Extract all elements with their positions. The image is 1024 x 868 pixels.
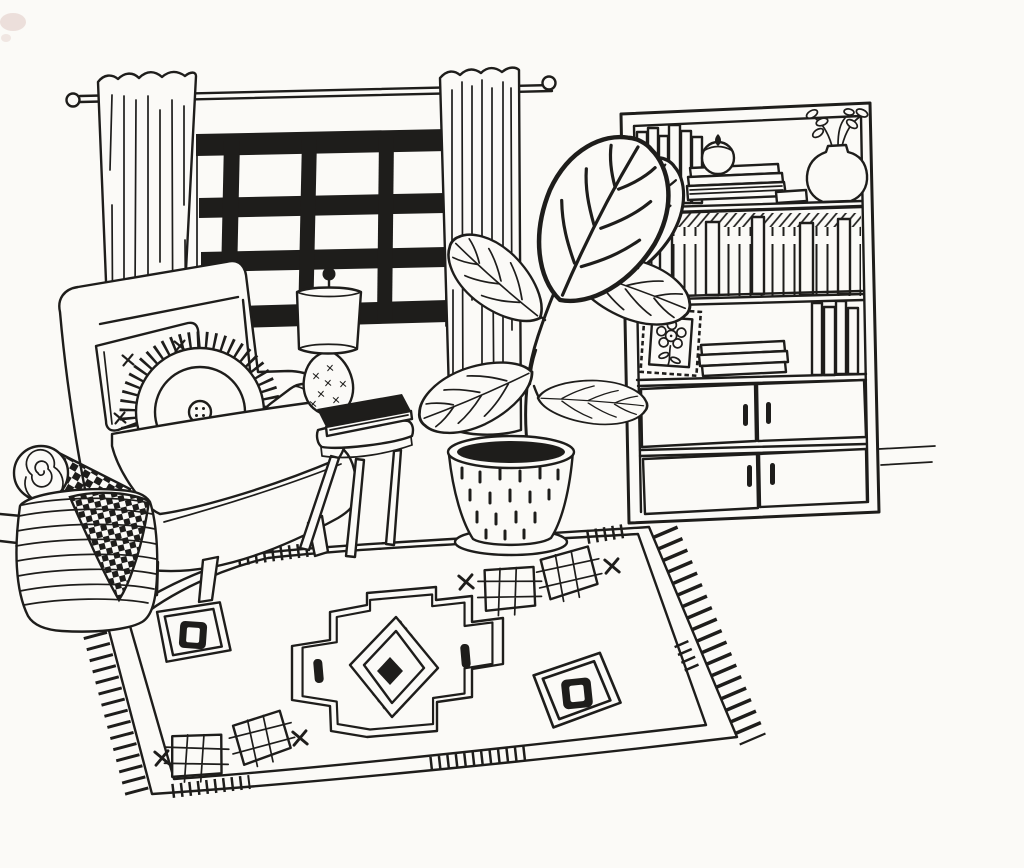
cabinet-door [643,454,758,514]
door-handle [770,463,775,485]
paper-smudge [0,13,26,42]
standing-books [812,301,858,375]
lamp [297,268,361,415]
rod-finial-right [543,77,556,90]
door-handle [743,404,748,426]
living-room-illustration: Black ink line drawing of a cozy living … [0,0,1024,868]
lamp-finial-ball [323,268,336,281]
cabinet-door [641,384,756,447]
door-handle [747,465,752,487]
baseboard-line-lower [881,462,932,465]
stool-leg [386,450,401,545]
pot-soil [457,441,565,463]
rod-finial-left [67,94,80,107]
baseboard-line-upper [879,446,935,449]
book-stack [699,341,788,376]
window-mullion [377,136,394,322]
cabinet-door [757,380,866,441]
plant-pot [448,436,574,555]
scene-canvas [0,0,1024,868]
cabinet-door [759,449,867,507]
door-handle [766,402,771,424]
